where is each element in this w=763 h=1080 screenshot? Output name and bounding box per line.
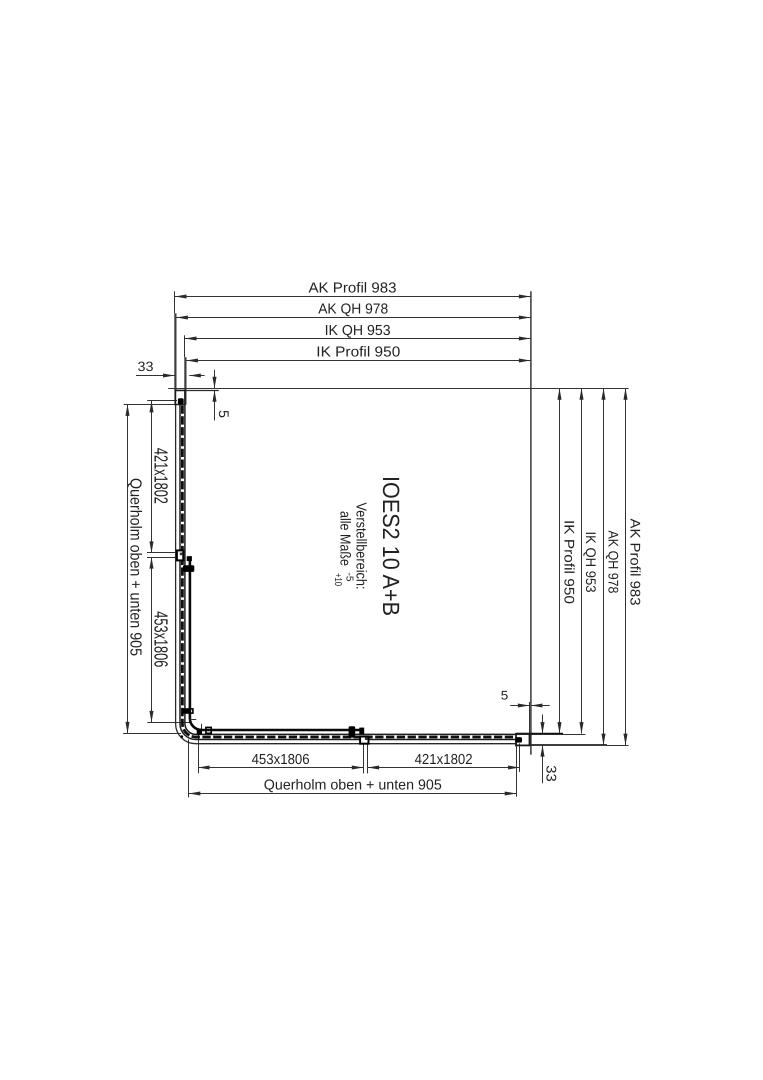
svg-text:IK QH 953: IK QH 953 xyxy=(583,532,599,593)
svg-text:453x1806: 453x1806 xyxy=(149,611,170,667)
svg-text:Querholm oben + unten 905: Querholm oben + unten 905 xyxy=(264,777,442,793)
svg-text:421x1802: 421x1802 xyxy=(415,752,473,768)
svg-text:AK Profil 983: AK Profil 983 xyxy=(309,280,397,296)
svg-text:33: 33 xyxy=(138,359,154,374)
svg-text:Querholm oben + unten 905: Querholm oben + unten 905 xyxy=(126,478,143,656)
svg-text:AK QH 978: AK QH 978 xyxy=(605,531,621,594)
svg-text:421x1802: 421x1802 xyxy=(149,448,170,504)
svg-text:AK Profil 983: AK Profil 983 xyxy=(628,519,644,606)
svg-text:-5: -5 xyxy=(344,573,355,582)
svg-text:IOES2 10 A+B: IOES2 10 A+B xyxy=(378,476,404,616)
svg-text:33: 33 xyxy=(544,765,560,782)
svg-text:5: 5 xyxy=(501,689,509,703)
svg-text:453x1806: 453x1806 xyxy=(252,752,310,768)
svg-text:5: 5 xyxy=(216,410,232,418)
svg-text:IK Profil 950: IK Profil 950 xyxy=(561,520,577,604)
svg-text:alle Maße: alle Maße xyxy=(336,511,352,566)
svg-text:AK QH 978: AK QH 978 xyxy=(318,302,388,318)
svg-text:IK Profil 950: IK Profil 950 xyxy=(316,344,400,360)
svg-text:+10: +10 xyxy=(332,573,343,586)
svg-text:IK QH 953: IK QH 953 xyxy=(325,323,391,339)
